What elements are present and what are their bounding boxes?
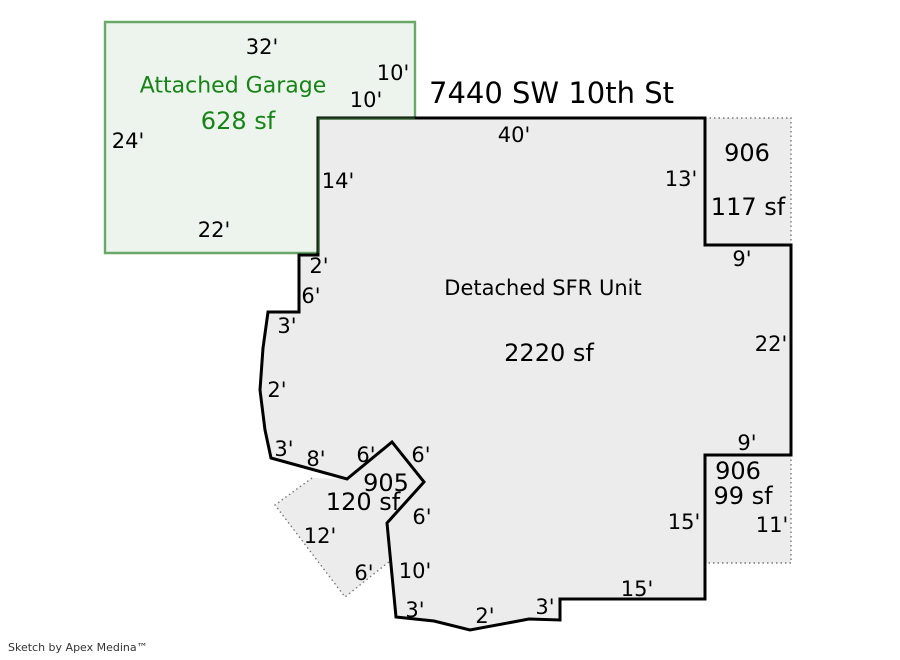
dimension-label: 12' — [304, 524, 337, 548]
dimension-label: 2' — [267, 378, 286, 402]
dimension-label: 6' — [356, 443, 375, 467]
dimension-label: 15' — [621, 577, 654, 601]
garage-area-label: 628 sf — [201, 107, 276, 135]
dimension-label: 11' — [756, 513, 789, 537]
dimension-label: 32' — [246, 35, 279, 59]
dimension-label: 3' — [405, 598, 424, 622]
dimension-label: 24' — [112, 129, 145, 153]
dimension-label: 9' — [732, 247, 751, 271]
dimension-label: 3' — [274, 437, 293, 461]
credit-text: Sketch by Apex Medina™ — [8, 641, 148, 654]
dimension-label: 13' — [665, 167, 698, 191]
dimension-label: 6' — [411, 443, 430, 467]
area-906-lower-id-label: 906 — [715, 457, 761, 485]
dimension-label: 10' — [350, 88, 383, 112]
dimension-label: 6' — [412, 505, 431, 529]
dimension-label: 10' — [399, 559, 432, 583]
dimension-label: 3' — [277, 314, 296, 338]
dimension-label: 15' — [668, 510, 701, 534]
area-906-upper-id-label: 906 — [724, 139, 770, 167]
area-906-upper-size-label: 117 sf — [711, 193, 786, 221]
dimension-label: 6' — [301, 284, 320, 308]
dimension-label: 14' — [322, 169, 355, 193]
unit-label: Detached SFR Unit — [444, 276, 641, 300]
dimension-label: 6' — [354, 561, 373, 585]
area-905-size-label: 120 sf — [326, 488, 401, 516]
sketch-title: 7440 SW 10th St — [429, 76, 674, 110]
dimension-label: 40' — [498, 123, 531, 147]
area-906-upper-fill — [705, 118, 791, 245]
dimension-label: 2' — [309, 254, 328, 278]
dimension-label: 8' — [306, 447, 325, 471]
dimension-label: 3' — [535, 595, 554, 619]
area-906-lower-size-label: 99 sf — [713, 482, 773, 510]
garage-label: Attached Garage — [140, 74, 326, 99]
property-sketch-page: 40'13'14'9'22'9'15'11'15'3'2'3'10'6'12'6… — [0, 0, 900, 660]
dimension-label: 10' — [377, 61, 410, 85]
dimension-label: 9' — [737, 431, 756, 455]
dimension-label: 2' — [475, 604, 494, 628]
dimension-label: 22' — [198, 218, 231, 242]
dimension-label: 22' — [755, 332, 788, 356]
unit-area-label: 2220 sf — [504, 339, 594, 367]
